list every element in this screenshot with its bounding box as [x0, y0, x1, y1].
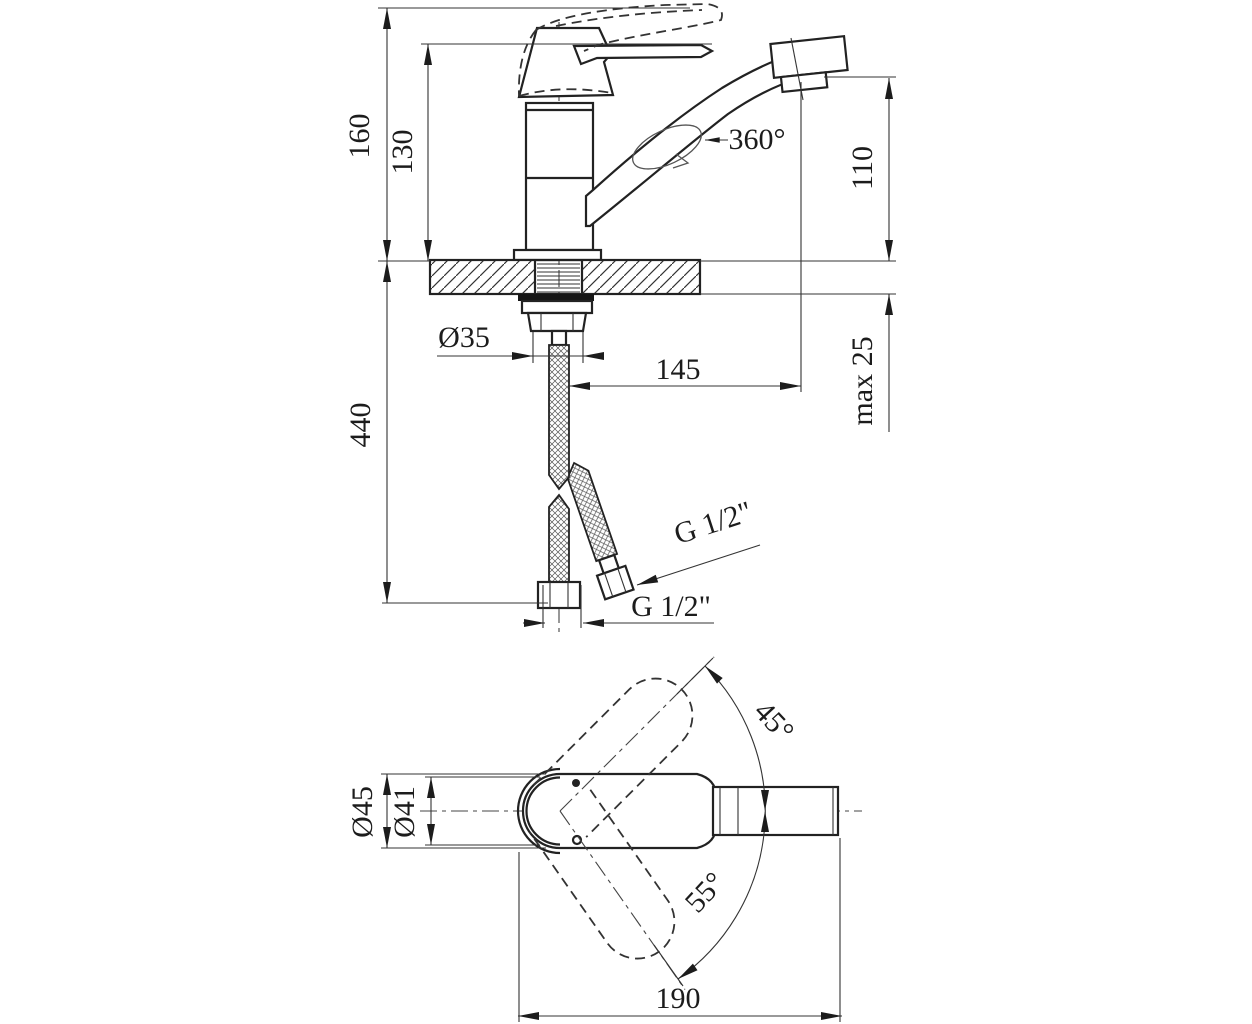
dim-inner-diameter-label: Ø41 — [388, 786, 421, 838]
angled-hose — [560, 458, 634, 599]
aerator — [781, 72, 827, 92]
plan-view: Ø45 Ø41 45° 55° 190 — [346, 631, 862, 1022]
handle-dome — [519, 28, 613, 97]
countertop — [430, 260, 700, 294]
dim-swing-up-label: 45° — [748, 695, 801, 748]
base-flange — [514, 250, 601, 260]
dim-overall-length-label: 190 — [656, 982, 701, 1015]
swivel-360-label: 360° — [729, 123, 786, 156]
side-view: 160 130 110 max 25 440 Ø35 145 360° G 1/… — [343, 4, 896, 634]
faucet-technical-drawing: 160 130 110 max 25 440 Ø35 145 360° G 1/… — [0, 0, 1252, 1024]
dim-body-height-label: 130 — [386, 130, 419, 175]
spout-outlet — [770, 36, 849, 92]
bottom-hose-thread-label: G 1/2" — [631, 590, 711, 623]
pivot-pin-top — [572, 779, 580, 787]
dim-hose-length-label: 440 — [344, 403, 377, 448]
hose-stem — [552, 331, 566, 345]
mounting-nut — [528, 313, 586, 331]
dim-shank-diameter-label: Ø35 — [438, 321, 490, 354]
plan-body — [523, 774, 716, 848]
dim-max-counter-label: max 25 — [846, 336, 879, 425]
faucet-body — [526, 103, 593, 250]
hose-end-nut — [538, 582, 580, 608]
side-hose-thread-label: G 1/2" — [670, 495, 756, 551]
dim-spout-reach-label: 145 — [656, 353, 701, 386]
side-dimensions: 160 130 110 max 25 440 Ø35 145 360° G 1/… — [343, 8, 896, 628]
dim-outer-diameter-label: Ø45 — [346, 786, 379, 838]
dim-swing-down-label: 55° — [679, 866, 732, 919]
hose-upper — [549, 345, 569, 489]
dim-spout-height-label: 110 — [846, 146, 879, 190]
plan-handle-grip — [713, 787, 838, 835]
mounting-washer — [522, 301, 592, 313]
hose-lower — [549, 495, 569, 582]
drawing-canvas: 160 130 110 max 25 440 Ø35 145 360° G 1/… — [0, 0, 1252, 1024]
dim-total-height-label: 160 — [343, 114, 376, 159]
